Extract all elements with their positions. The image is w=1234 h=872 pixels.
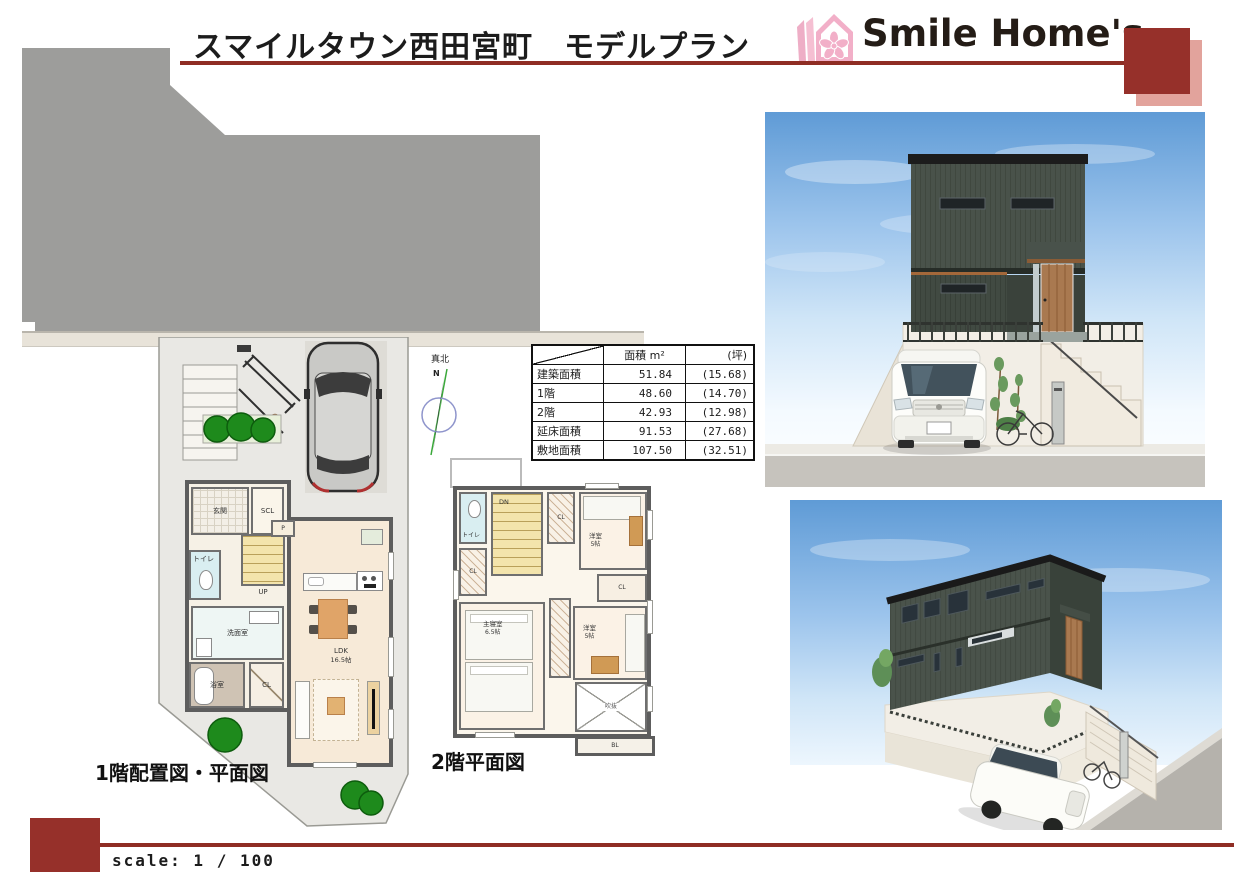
- table-row: 1階 48.60 (14.70): [532, 384, 754, 403]
- table-row: 2階 42.93 (12.98): [532, 403, 754, 422]
- bedroom1-label: 洋室 5帖: [589, 532, 602, 549]
- room-toilet-1f: トイレ: [189, 550, 221, 600]
- desk: [591, 656, 619, 674]
- toilet-fixture: [468, 500, 481, 518]
- toilet-fixture: [199, 570, 213, 590]
- floor1-east-wing: LDK 16.5帖: [287, 517, 393, 767]
- window: [647, 686, 653, 712]
- window: [388, 709, 394, 739]
- render-front-view: [765, 112, 1205, 487]
- window: [647, 510, 653, 540]
- north-compass: 真北 N: [413, 352, 467, 462]
- washing-machine: [196, 638, 212, 657]
- compass-drawing: [413, 365, 467, 459]
- table-corner-cell: [532, 345, 604, 365]
- front-door: [1041, 264, 1073, 332]
- car-plan-icon: [304, 343, 382, 491]
- window: [313, 762, 357, 768]
- title-underline: [180, 61, 1130, 65]
- roof-eave: [450, 458, 522, 488]
- room-closet-2f-c: CL: [597, 574, 647, 602]
- room-ldk-label: LDK 16.5帖: [311, 647, 371, 665]
- room-pantry: P: [271, 520, 295, 537]
- room-closet-2f-a: CL: [547, 492, 575, 544]
- mail-post: [1052, 382, 1064, 444]
- scale-label: scale: 1 / 100: [112, 851, 275, 870]
- vanity: [249, 611, 279, 624]
- chair: [347, 625, 357, 634]
- desk: [629, 516, 643, 546]
- bedroom2-label: 洋室 5帖: [583, 624, 596, 641]
- bushes-row: [204, 413, 275, 442]
- floor2-outline: トイレ DN CL 洋室 5帖 CL CL: [453, 486, 651, 738]
- pillow: [470, 666, 528, 675]
- floor2-caption: 2階平面図: [431, 746, 525, 775]
- room-bath: 浴室: [189, 662, 245, 708]
- true-north-label: 真北: [413, 352, 467, 365]
- brand-house-icon: [793, 7, 859, 65]
- van: [883, 350, 991, 455]
- bed: [625, 614, 645, 672]
- table-header-row: 面積 m² (坪): [532, 345, 754, 365]
- room-closet-2f-b: CL: [459, 548, 487, 596]
- window: [647, 600, 653, 634]
- col-header-tsubo: (坪): [686, 345, 755, 365]
- room-bedroom1: 洋室 5帖: [579, 492, 647, 570]
- adjacent-site-block: [22, 48, 540, 331]
- table-row: 敷地面積 107.50 (32.51): [532, 441, 754, 461]
- accent-square: [1124, 28, 1190, 94]
- master-label: 主寝室 6.5帖: [483, 620, 503, 637]
- stairs-up: [241, 534, 285, 586]
- window-1f: [941, 284, 986, 293]
- house-front: [908, 154, 1088, 342]
- plan-sheet-page: スマイルタウン西田宮町 モデルプラン Smile Home's: [0, 0, 1234, 872]
- dining-table: [318, 599, 348, 639]
- area-table: 面積 m² (坪) 建築面積 51.84 (15.68) 1階 48.60 (1…: [531, 344, 755, 461]
- tv: [372, 689, 375, 729]
- brand-logo-text: Smile Home's: [862, 12, 1144, 55]
- front-door: [1066, 616, 1082, 679]
- coffee-table: [327, 697, 345, 715]
- window: [475, 732, 515, 738]
- window-2f: [940, 198, 985, 209]
- room-closet-2f-d: [549, 598, 571, 678]
- mail-post: [1120, 732, 1128, 778]
- page-title: スマイルタウン西田宮町 モデルプラン: [193, 22, 750, 66]
- room-bedroom2: 洋室 5帖: [573, 606, 647, 680]
- render-aerial-view: [790, 500, 1222, 830]
- stairs-up-label: UP: [245, 588, 281, 597]
- window: [388, 637, 394, 677]
- kitchen-sink: [308, 577, 324, 586]
- footer-line: [100, 843, 1234, 847]
- table-row: 延床面積 91.53 (27.68): [532, 422, 754, 441]
- window: [453, 570, 459, 600]
- floor1-caption: 1階配置図・平面図: [95, 757, 269, 786]
- tv-board: [367, 681, 380, 735]
- floor2-plan: トイレ DN CL 洋室 5帖 CL CL: [445, 450, 675, 770]
- refrigerator: [361, 529, 383, 545]
- room-washroom: 洗面室: [191, 606, 284, 660]
- window-2f: [1011, 198, 1054, 209]
- window: [388, 552, 394, 580]
- footer-accent-square: [30, 818, 100, 872]
- road: [765, 454, 1205, 487]
- void-atrium: 吹抜: [575, 682, 647, 732]
- utility-box: [237, 345, 251, 352]
- room-master-bedroom: 主寝室 6.5帖: [459, 602, 545, 730]
- room-genkan: 玄関: [191, 487, 249, 535]
- room-closet-1f: CL: [249, 662, 284, 708]
- bed: [465, 662, 533, 712]
- roof: [908, 154, 1088, 164]
- sofa: [295, 681, 310, 739]
- room-toilet-2f: トイレ: [459, 492, 487, 544]
- balcony: BL: [575, 736, 655, 756]
- col-header-area: 面積 m²: [604, 345, 686, 365]
- table-row: 建築面積 51.84 (15.68): [532, 365, 754, 384]
- floor1-plan: 玄関 SCL トイレ UP 洗面室 浴室 CL: [155, 337, 415, 827]
- stove: [357, 571, 383, 591]
- kitchen-counter: [303, 573, 357, 591]
- floor1-west-wing: 玄関 SCL トイレ UP 洗面室 浴室 CL: [185, 480, 291, 712]
- window: [585, 483, 619, 489]
- chair: [347, 605, 357, 614]
- stairs-down: DN: [491, 492, 543, 576]
